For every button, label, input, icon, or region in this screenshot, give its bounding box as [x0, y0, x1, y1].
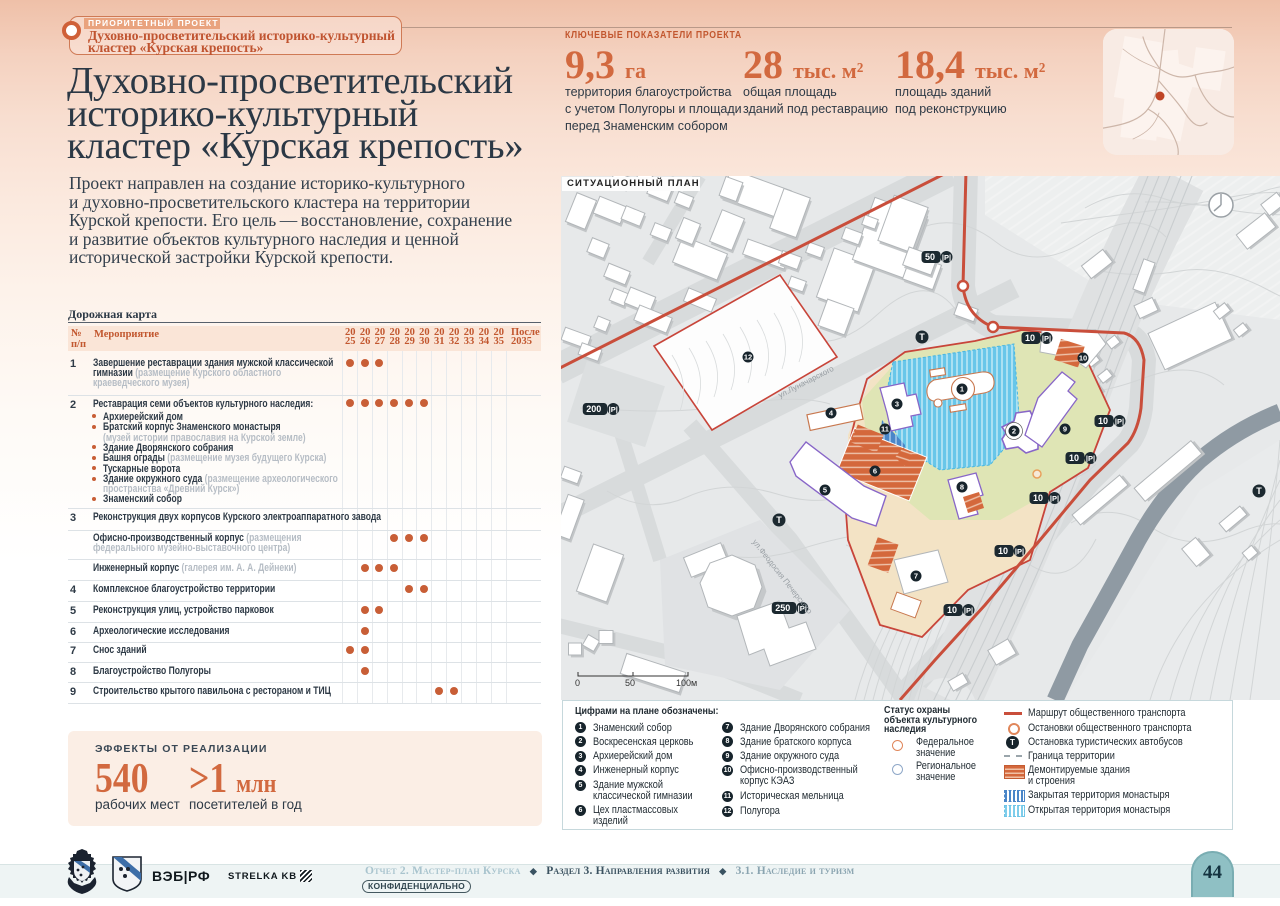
svg-text:10: 10 — [1025, 333, 1035, 343]
svg-text:T: T — [1256, 486, 1262, 496]
svg-text:50: 50 — [925, 252, 935, 262]
svg-text:10: 10 — [1098, 416, 1108, 426]
svg-text:|P|: |P| — [1015, 547, 1024, 556]
svg-text:10: 10 — [998, 546, 1008, 556]
svg-text:|P|: |P| — [1086, 454, 1095, 463]
svg-text:3: 3 — [895, 400, 899, 409]
svg-text:10: 10 — [947, 605, 957, 615]
svg-text:|P|: |P| — [1115, 417, 1124, 426]
svg-text:11: 11 — [881, 425, 889, 434]
svg-text:T: T — [919, 332, 925, 342]
svg-text:100м: 100м — [676, 678, 697, 688]
svg-text:1: 1 — [960, 385, 964, 394]
svg-text:6: 6 — [873, 467, 877, 476]
svg-text:|P|: |P| — [964, 606, 973, 615]
svg-text:8: 8 — [960, 483, 964, 492]
svg-text:T: T — [776, 515, 782, 525]
svg-text:|P|: |P| — [942, 253, 951, 262]
svg-text:|P|: |P| — [609, 405, 618, 414]
svg-text:200: 200 — [586, 404, 601, 414]
svg-text:10: 10 — [1079, 354, 1087, 363]
svg-text:10: 10 — [1033, 493, 1043, 503]
svg-text:|P|: |P| — [1050, 494, 1059, 503]
svg-text:9: 9 — [1063, 425, 1067, 434]
svg-text:10: 10 — [1069, 453, 1079, 463]
svg-text:5: 5 — [823, 486, 827, 495]
svg-text:0: 0 — [575, 678, 580, 688]
svg-text:|P|: |P| — [1042, 334, 1051, 343]
svg-text:250: 250 — [775, 603, 790, 613]
svg-text:2: 2 — [1012, 427, 1016, 436]
svg-text:12: 12 — [744, 353, 752, 362]
svg-text:7: 7 — [914, 572, 918, 581]
svg-text:50: 50 — [625, 678, 635, 688]
